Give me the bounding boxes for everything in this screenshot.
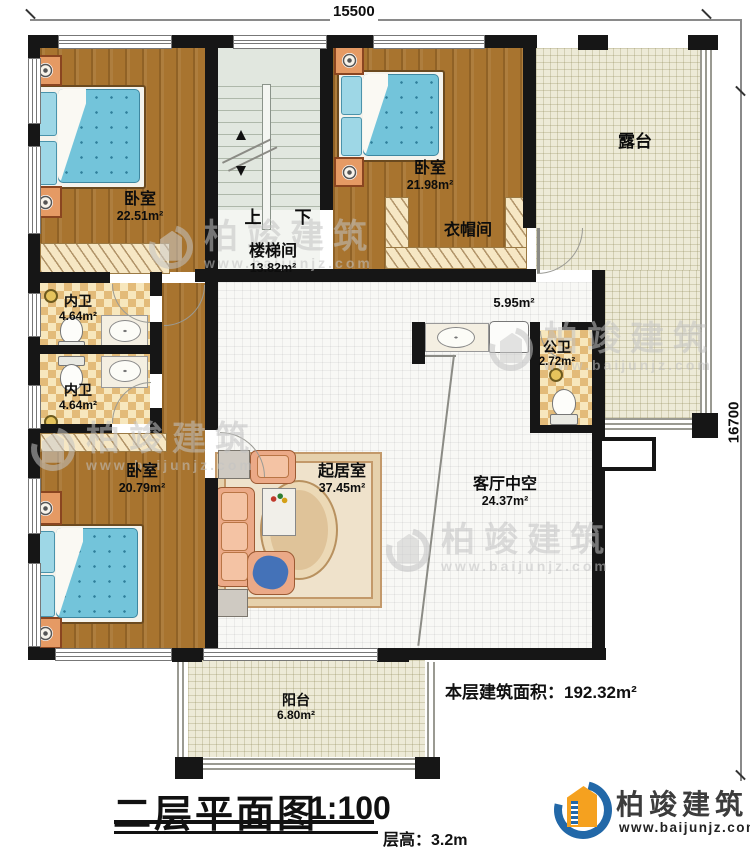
wall-corridor-right-2 <box>205 478 218 648</box>
wall-bedtl-bottom-a <box>28 272 110 283</box>
bed-top-right-pillow-1 <box>341 76 362 115</box>
floor-height-label: 层高：3.2m <box>383 826 467 850</box>
window-left-5 <box>28 478 41 534</box>
void-label: 客厅中空24.37m² <box>455 476 555 508</box>
flue-box <box>598 437 656 471</box>
bedroom-bottom-left-label: 卧室20.79m² <box>92 463 192 495</box>
dim-top-label: 15500 <box>330 4 378 21</box>
terrace-pillar-2 <box>688 35 718 50</box>
balcony-railing-right <box>427 662 429 757</box>
terrace-pillar-3 <box>692 413 718 438</box>
lamp-icon <box>342 165 357 180</box>
wall-bedtl-bottom-b <box>150 272 162 283</box>
bed-top-right-pillow-2 <box>341 117 362 156</box>
window-top-2 <box>233 35 327 49</box>
sliding-door-balcony <box>203 648 378 661</box>
terrace-floor-lower <box>605 270 700 418</box>
nightstand-4 <box>334 157 364 187</box>
window-left-3 <box>28 293 41 337</box>
bath-1-label: 内卫4.64m² <box>50 294 106 323</box>
balcony-railing-bottom <box>177 758 437 760</box>
window-top-1 <box>58 35 172 49</box>
bedroom-top-left-label: 卧室22.51m² <box>90 191 190 223</box>
wardrobe-bedroom-bottom-left <box>40 433 167 452</box>
balcony-railing-bottom-3 <box>177 768 437 770</box>
balcony-railing-left-2 <box>182 662 184 757</box>
floor-plan: 柏竣建筑 www.baijunjz.com 柏竣建筑 www.baijunjz.… <box>0 0 750 851</box>
living-label: 起居室37.45m² <box>292 463 392 495</box>
wall-counter-stub <box>412 322 425 364</box>
window-left-6 <box>28 563 41 647</box>
balcony-railing-left <box>177 662 179 757</box>
bedroom-top-right-label: 卧室21.98m² <box>380 160 480 192</box>
page-title: 二层平面图 <box>113 783 318 838</box>
bed-top-right-sheet <box>363 74 388 154</box>
brand-website: www.baijunjz.com <box>619 820 750 835</box>
balcony-railing-right-2 <box>433 662 435 757</box>
hall-area-label: 5.95m² <box>486 296 542 311</box>
stair-up-label: 上 <box>242 208 264 227</box>
window-left-1 <box>28 58 41 124</box>
brand-name: 柏竣建筑 <box>616 783 748 823</box>
stair-arrow-up <box>236 130 246 140</box>
public-bath-label: 公卫2.72m² <box>528 340 586 369</box>
wall-corridor-right-1 <box>205 283 218 430</box>
wall-bedtr-right <box>523 35 536 228</box>
sofa-cushion-3 <box>221 552 248 581</box>
washing-machine <box>489 321 529 353</box>
wall-stair-left <box>205 35 218 283</box>
brand-logo-icon <box>552 779 614 841</box>
basin-hall <box>437 327 475 348</box>
terrace-pillar-1 <box>578 35 608 50</box>
wall-stair-right <box>320 35 333 210</box>
terrace-railing-right-3 <box>710 35 712 433</box>
toilet-public-bath <box>552 389 576 417</box>
wall-bath-right-1 <box>150 283 162 296</box>
dim-right-label: 16700 <box>727 389 744 455</box>
balcony-label: 阳台6.80m² <box>246 693 346 722</box>
terrace-railing-right <box>700 35 702 433</box>
bed-bottom-left-sheet <box>56 528 83 616</box>
balcony-pillar-4 <box>415 757 440 779</box>
dim-line-top <box>30 19 742 21</box>
light-public-bath <box>549 368 563 382</box>
dim-tick-1 <box>25 9 36 20</box>
bed-top-left-sheet <box>58 89 86 181</box>
closet-label: 衣帽间 <box>428 222 508 240</box>
dim-tick-2 <box>701 9 712 20</box>
title-underline-2 <box>114 831 378 834</box>
wall-bath-right-2 <box>150 322 162 374</box>
floor-area-total: 本层建筑面积：192.32m² <box>445 678 637 703</box>
sofa-cushion-1 <box>221 492 248 521</box>
window-top-3 <box>373 35 485 49</box>
sofa-cushion-2 <box>221 522 248 551</box>
stair-down-label: 下 <box>292 208 314 227</box>
side-table-2 <box>216 589 248 617</box>
wall-bath-divider <box>28 345 150 354</box>
wall-pubbath-bottom <box>530 425 602 433</box>
void-outline-top <box>425 355 456 357</box>
basin-bath-2 <box>109 360 141 382</box>
nightstand-3 <box>334 46 364 75</box>
flower-decor <box>267 492 289 506</box>
basin-bath-1 <box>109 320 141 342</box>
stair-arrow-down <box>236 166 246 176</box>
toilet-tank-public-bath <box>550 414 578 425</box>
wall-pubbath-top <box>562 322 592 330</box>
lamp-icon <box>342 53 357 68</box>
title-underline-1 <box>114 820 374 824</box>
balcony-pillar-3 <box>175 757 203 779</box>
window-left-4 <box>28 385 41 429</box>
closet-bottom-strip <box>385 247 527 269</box>
terrace-label: 露台 <box>605 132 665 151</box>
balcony-pillar-1 <box>172 648 202 662</box>
window-left-2 <box>28 146 41 234</box>
window-bottom-1 <box>55 648 172 661</box>
wardrobe-bedroom-top-left <box>40 243 170 274</box>
door-leaf-terrace <box>537 228 540 273</box>
bath-2-label: 内卫4.64m² <box>50 383 106 412</box>
wall-bath-right-3 <box>150 408 162 433</box>
balcony-railing-bottom-2 <box>177 763 437 765</box>
terrace-railing-right-2 <box>705 35 707 433</box>
wall-pubbath-left <box>530 322 540 433</box>
balcony-pillar-2 <box>377 648 409 662</box>
stairwell-label: 楼梯间13.82m² <box>223 243 323 275</box>
